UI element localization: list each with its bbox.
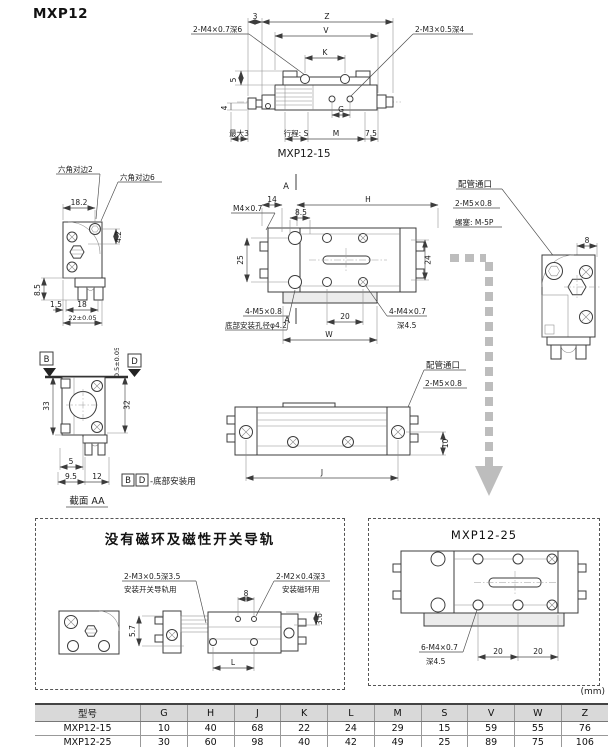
- body-outline: [393, 551, 586, 626]
- catalog-page: MXP12: [0, 0, 610, 747]
- model-cell: MXP12-25: [35, 736, 141, 747]
- datum-label: D: [139, 476, 146, 486]
- mounting-note: B D -底部安装用: [122, 474, 196, 487]
- value-cell: 10: [141, 722, 188, 736]
- dim-label: 4.2: [114, 231, 123, 243]
- col-header: V: [468, 704, 515, 722]
- datum-label: D: [131, 357, 138, 367]
- table-row: MXP12-15 10 40 68 22 24 29 15 59 55 76: [35, 722, 608, 736]
- top-elevation-drawing: 3 Z V K 5 4 G: [185, 8, 605, 162]
- col-header: H: [187, 704, 234, 722]
- value-cell: 89: [468, 736, 515, 747]
- col-header: Z: [561, 704, 608, 722]
- body-outline: [260, 228, 424, 303]
- dim-label: 32: [123, 400, 132, 410]
- dim-label: 14: [267, 195, 277, 204]
- dim-label: 3: [253, 12, 258, 21]
- value-cell: 22: [281, 722, 328, 736]
- dim-label: W: [325, 330, 333, 339]
- dim-label: K: [323, 48, 329, 57]
- dim-label: 20: [493, 647, 503, 656]
- arrow-head-icon: [475, 466, 503, 496]
- dim-label: 5.7: [128, 625, 137, 637]
- col-header: L: [328, 704, 375, 722]
- thread-callout: 4-M4×0.7: [389, 307, 426, 316]
- thread-callout: 2-M5×0.8: [455, 199, 492, 208]
- note-callout: 安装开关导轨用: [124, 584, 177, 594]
- dim-label: 最大3: [229, 128, 249, 138]
- plan-view-drawing: A 14: [225, 162, 455, 354]
- model-cell: MXP12-15: [35, 722, 141, 736]
- end-view-drawing: 六角对边2 六角对边6 18.2: [28, 160, 193, 338]
- no-magnet-panel: 没有磁环及磁性开关导轨: [35, 518, 345, 690]
- mxp12-25-panel: MXP12-25: [368, 518, 600, 686]
- dim-label: G: [338, 105, 344, 114]
- value-cell: 60: [187, 736, 234, 747]
- dim-label: 5: [229, 77, 238, 82]
- port-callout: 配管通口: [426, 360, 460, 371]
- col-header: M: [374, 704, 421, 722]
- end-view-outline: [59, 611, 119, 654]
- drawing-caption: 截面 AA: [69, 495, 105, 507]
- dim-label: 8.5: [33, 284, 42, 296]
- depth-callout: 深4.5: [426, 657, 446, 666]
- dim-label: 8.5: [295, 208, 307, 217]
- section-aa-drawing: B D 0.5±0.05 33: [30, 348, 230, 513]
- dim-label: 24: [424, 255, 433, 265]
- value-cell: 49: [374, 736, 421, 747]
- value-cell: 40: [187, 722, 234, 736]
- value-cell: 15: [421, 722, 468, 736]
- body-outline: [542, 255, 600, 359]
- front-elevation-drawing: 配管通口 2-M5×0.8: [225, 358, 470, 490]
- value-cell: 59: [468, 722, 515, 736]
- dim-label: 行程: S: [284, 128, 309, 138]
- thread-callout: 2-M3×0.5深4: [415, 25, 464, 34]
- note-callout: 底部安装孔径φ4.2: [225, 320, 287, 330]
- value-cell: 106: [561, 736, 608, 747]
- body-outline: [227, 403, 418, 455]
- col-header: K: [281, 704, 328, 722]
- page-title: MXP12: [33, 6, 88, 22]
- dim-label: L: [231, 658, 236, 667]
- thread-callout: 2-M3×0.5深3.5: [124, 572, 181, 581]
- dim-label: J: [320, 468, 323, 477]
- body-outline: [237, 71, 401, 110]
- table-header-row: 型号 G H J K L M S V W Z: [35, 704, 608, 722]
- thread-callout: 2-M2×0.4深3: [276, 572, 325, 581]
- dim-label: 18: [77, 300, 87, 309]
- dim-label: 7.5: [365, 129, 377, 138]
- dim-label: 20: [533, 647, 543, 656]
- value-cell: 29: [374, 722, 421, 736]
- dim-label: 4: [220, 105, 229, 110]
- dim-label: V: [323, 26, 329, 35]
- dim-label: M: [333, 129, 339, 138]
- dim-label: 10: [441, 439, 450, 449]
- thread-callout: 2-M4×0.7深6: [193, 25, 242, 34]
- dim-label: 20: [340, 312, 350, 321]
- datum-label: B: [125, 476, 131, 486]
- body-outline: [63, 222, 105, 300]
- hex-callout: 六角对边6: [120, 172, 155, 182]
- dim-label: 5: [69, 457, 74, 466]
- dim-label: 0.5±0.05: [113, 348, 121, 377]
- value-cell: 76: [561, 722, 608, 736]
- no-magnet-drawing: 2-M3×0.5深3.5 安装开关导轨用 2-M2×0.4深3 安装磁环用 8 …: [36, 519, 343, 688]
- dim-label: 22±0.05: [68, 314, 96, 322]
- section-label: A: [283, 182, 289, 192]
- thread-callout: 2-M5×0.8: [425, 379, 462, 388]
- thread-callout: 4-M5×0.8: [245, 307, 282, 316]
- hex-callout: 六角对边2: [58, 164, 93, 174]
- thread-callout: 6-M4×0.7: [421, 643, 458, 652]
- value-cell: 25: [421, 736, 468, 747]
- dim-label: Z: [324, 12, 329, 21]
- value-cell: 55: [515, 722, 562, 736]
- dimensions-table: 型号 G H J K L M S V W Z MXP12-15 10 40 68…: [35, 703, 608, 747]
- col-header: S: [421, 704, 468, 722]
- side-view-outline: [155, 611, 306, 653]
- value-cell: 42: [328, 736, 375, 747]
- col-header-model: 型号: [35, 704, 141, 722]
- dim-label: 18.2: [71, 198, 88, 207]
- port-callout: 配管通口: [458, 179, 492, 190]
- dim-label: 3.6: [315, 613, 324, 625]
- col-header: W: [515, 704, 562, 722]
- dim-label: 12: [92, 472, 102, 481]
- note-callout: 安装磁环用: [282, 584, 320, 594]
- dim-label: 8: [585, 236, 590, 245]
- plug-callout: 螺塞: M-5P: [455, 217, 494, 227]
- table-row: MXP12-25 30 60 98 40 42 49 25 89 75 106: [35, 736, 608, 747]
- depth-callout: 深4.5: [397, 321, 417, 330]
- value-cell: 75: [515, 736, 562, 747]
- dim-label: H: [365, 195, 371, 204]
- value-cell: 24: [328, 722, 375, 736]
- dim-label: 25: [236, 255, 245, 265]
- dim-label: 8: [244, 589, 249, 598]
- body-outline: [45, 377, 128, 455]
- value-cell: 68: [234, 722, 281, 736]
- value-cell: 40: [281, 736, 328, 747]
- dim-label: 1.5: [50, 300, 62, 309]
- col-header: G: [141, 704, 188, 722]
- dim-label: 9.5: [65, 472, 77, 481]
- datum-label: B: [44, 355, 50, 365]
- dim-label: 33: [42, 401, 51, 411]
- thread-callout: M4×0.7: [233, 204, 263, 213]
- col-header: J: [234, 704, 281, 722]
- drawing-caption: MXP12-15: [277, 148, 330, 160]
- units-note: (mm): [557, 687, 605, 697]
- value-cell: 98: [234, 736, 281, 747]
- value-cell: 30: [141, 736, 188, 747]
- mxp12-25-drawing: 6-M4×0.7 深4.5 20 20: [369, 519, 598, 684]
- note-text: -底部安装用: [150, 476, 196, 487]
